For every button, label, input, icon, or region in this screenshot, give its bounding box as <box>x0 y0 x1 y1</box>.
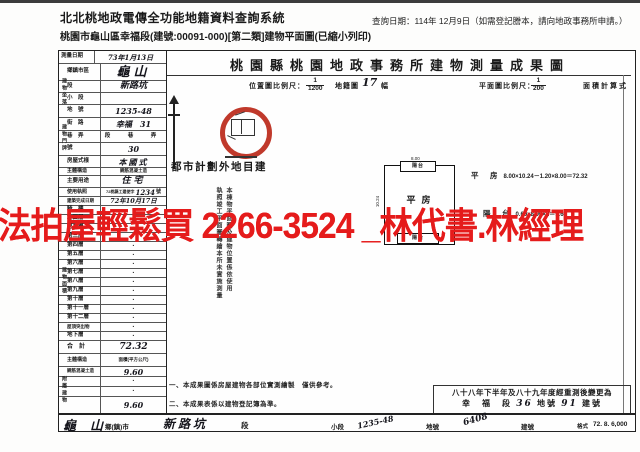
north-arrow-crossbar <box>168 114 180 116</box>
form-row-survey-date: 測量日期 73年1月13日 <box>59 51 166 64</box>
zoning-note: 都市計劃外地目建 <box>171 159 267 174</box>
map-title: 桃園縣桃園地政事務所建物測量成果圖 <box>171 55 629 74</box>
footer-section: 新路坑 <box>163 415 208 432</box>
resurvey-line1: 八十八年下半年及八十九年度經重測後變更為 <box>434 387 630 398</box>
form-row-structure: 主體構造 鋼筋混凝土造 <box>59 168 166 176</box>
annex-row-3: · <box>59 387 166 397</box>
resurvey-note-box: 八十八年下半年及八十九年度經重測後變更為 幸 福 段 36 地號 91 建號 <box>433 385 631 414</box>
title-divider <box>165 75 631 76</box>
footer-format-label: 格式 <box>577 422 588 430</box>
floor-row-basement: 地下層· <box>59 332 166 341</box>
group-label-building-location: 建物坐落 <box>60 67 68 117</box>
note-1: 一、本成果圖係房屋建物各部位實測繪製 僅供參考。 <box>169 379 337 389</box>
group-label-door-plate: 建物門牌 <box>60 119 68 157</box>
footer-subsection-unit: 小段 <box>331 421 344 431</box>
footer-divider <box>59 413 635 415</box>
form-row-total-area: 合 計 72.32 <box>59 341 166 354</box>
floor-row-rooftop: 屋頂突出物· <box>59 323 166 332</box>
floor-row-7: 第七層· <box>59 269 166 278</box>
group-label-annex-building: 附屬建物 <box>60 369 68 411</box>
form-row-lane-alley: 巷 弄 段 巷 弄 <box>59 131 166 143</box>
land-registry-printout: 北北桃地政電傳全功能地籍資料查詢系統 查詢日期：114年 12月9日（如需登記謄… <box>0 0 640 452</box>
form-row-house-style: 房屋式樣 本國式 <box>59 156 166 168</box>
system-title: 北北桃地政電傳全功能地籍資料查詢系統 <box>60 9 285 26</box>
plan-scale-fraction: 1 200 <box>531 78 546 93</box>
floor-row-11: 第十一層· <box>59 305 166 314</box>
map-sheet-label: 地籍圖 <box>335 81 359 91</box>
form-row-section: 段 新路坑 <box>59 81 166 93</box>
location-scale-fraction: 1 1200 <box>306 78 324 93</box>
location-sketch-line <box>241 119 242 134</box>
document-subtitle: 桃園市龜山區幸福段(建號:00091-000)[第二類]建物平面圖(已縮小列印) <box>60 28 371 43</box>
annex-row-2: · <box>59 377 166 387</box>
footer-lot-number: 1235-48 <box>356 413 394 430</box>
footer-lot-unit: 地號 <box>426 421 439 431</box>
form-row-street: 街 路 幸福 31 <box>59 118 166 131</box>
location-scale-label: 位置圖比例尺： <box>249 81 305 91</box>
floor-row-6: 第六層· <box>59 260 166 269</box>
plan-scale-label: 平面圖比例尺： <box>479 81 535 91</box>
footer-town-unit: 鄉(鎮)市 <box>105 421 129 431</box>
red-ad-watermark: 法拍屋輕鬆買 2266-3524 _林代書.林經理 <box>0 197 640 249</box>
floor-row-8: 第八層· <box>59 278 166 287</box>
footer-building-unit: 建號 <box>521 421 534 431</box>
location-sketch-road <box>225 156 257 158</box>
floor-row-10: 第十層· <box>59 296 166 305</box>
form-row-subsection: 小 段 <box>59 93 166 105</box>
note-2: 二、本成果表係以建物登記簿為準。 <box>169 398 281 408</box>
form-row-door-number: 號 30 <box>59 143 166 156</box>
area-calc-label: 面積計算式 <box>583 81 628 91</box>
form-row-use-permit: 使用執照 72桃縣工建使字 1234 號 <box>59 188 166 197</box>
area-calc-main: 平 房8.00×10.24－1.20×8.00＝72.32 <box>471 170 588 181</box>
floor-row-5: 第五層· <box>59 251 166 260</box>
query-date: 查詢日期：114年 12月9日（如需登記謄本，請向地政事務所申請。） <box>372 15 627 27</box>
floor-row-9: 第九層· <box>59 287 166 296</box>
form-row-town: 鄉鎮市區 龜山 <box>59 64 166 81</box>
scan-edge <box>0 0 640 3</box>
map-sheet-number: 17 <box>362 76 377 89</box>
annex-row-1: 鋼筋混凝土造 9.60 <box>59 367 166 377</box>
resurvey-building-number: 91 <box>561 399 578 409</box>
annex-total-row: 9.60 <box>59 397 166 413</box>
resurvey-line2: 幸 福 段 36 地號 91 建號 <box>434 398 630 409</box>
location-sketch-parcel <box>231 119 255 136</box>
annex-header-row: 主體構造 面積(平方公尺) <box>59 354 166 367</box>
resurvey-lot-number: 36 <box>516 399 533 409</box>
map-sheet-unit: 幅 <box>381 81 389 91</box>
footer-format-number: 72. 8. 6,000 <box>593 421 627 428</box>
floor-row-12: 第十二層· <box>59 314 166 323</box>
balcony-top: 陽台 <box>400 161 436 172</box>
form-row-lot: 地 號 1235-48 <box>59 105 166 118</box>
form-row-main-use: 主要用途 住宅 <box>59 176 166 188</box>
footer-section-unit: 段 <box>241 420 249 431</box>
